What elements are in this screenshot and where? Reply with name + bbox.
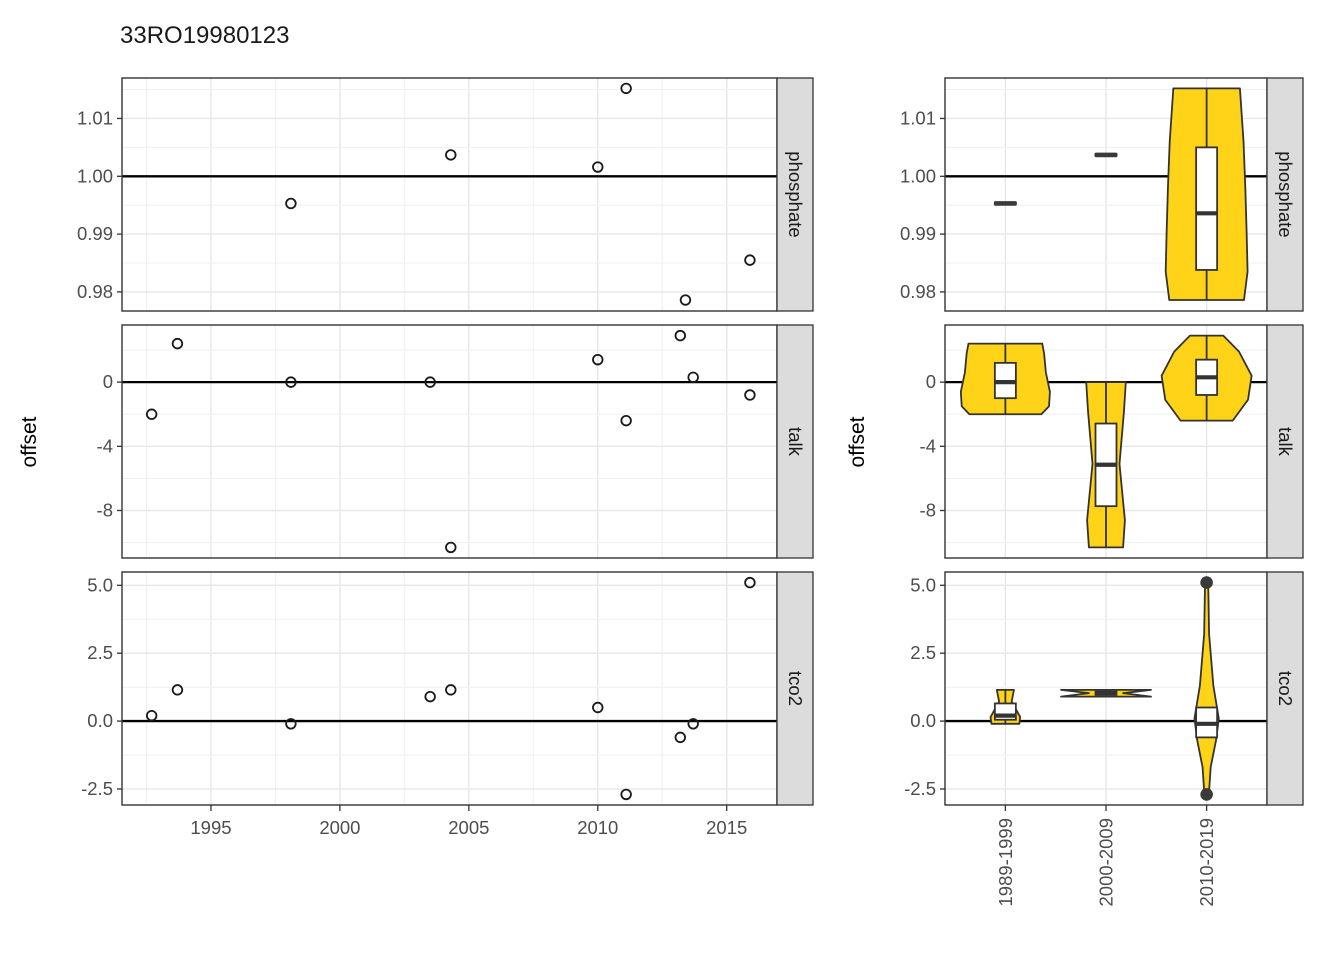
y-tick-label: 1.00 xyxy=(77,165,113,186)
y-tick-label: 5.0 xyxy=(87,574,113,595)
y-tick-label: -8 xyxy=(920,500,936,521)
scatter-panel-phosphate: 1.011.000.990.98phosphate xyxy=(77,78,813,311)
facet-strip-label: tco2 xyxy=(785,671,806,706)
single-value-dash xyxy=(1095,153,1118,158)
x-tick-label: 2010 xyxy=(577,817,618,838)
y-tick-label: -4 xyxy=(97,435,113,456)
y-tick-label: 0.99 xyxy=(900,223,936,244)
scatter-panel-tco2: 5.02.50.0-2.5tco2 xyxy=(81,572,813,805)
x-tick-label: 2015 xyxy=(706,817,747,838)
y-tick-label: 0.98 xyxy=(77,281,113,302)
y-tick-label: 1.01 xyxy=(900,107,936,128)
y-tick-label: 2.5 xyxy=(87,642,113,663)
y-tick-label: -2.5 xyxy=(904,778,936,799)
y-tick-label: 0.0 xyxy=(87,710,113,731)
facet-strip-label: talk xyxy=(785,427,806,457)
left-x-axis: 19952000200520102015 xyxy=(190,805,747,838)
crossover-offset-figure: 33RO19980123 offset offset 1.011.000.990… xyxy=(0,0,1344,960)
right-x-axis: 1989-19992000-20092010-2019 xyxy=(995,805,1217,906)
x-tick-label: 2000 xyxy=(319,817,360,838)
outlier-point xyxy=(1200,788,1213,801)
facet-strip-label: tco2 xyxy=(1275,671,1296,706)
outlier-point xyxy=(1200,576,1213,589)
y-tick-label: 1.00 xyxy=(900,165,936,186)
x-tick-label: 1995 xyxy=(190,817,231,838)
y-tick-label: 1.01 xyxy=(77,107,113,128)
box xyxy=(1196,147,1217,270)
x-tick-label-rotated: 2000-2009 xyxy=(1096,818,1117,906)
faceted-offset-charts: 1.011.000.990.98phosphate0-4-8talk5.02.5… xyxy=(0,0,1344,960)
y-tick-label: 0 xyxy=(926,371,936,392)
violin-panel-tco2: 5.02.50.0-2.5tco2 xyxy=(904,572,1303,805)
y-tick-label: 5.0 xyxy=(910,574,936,595)
scatter-panel-talk: 0-4-8talk xyxy=(97,325,813,558)
violin-panel-phosphate: 1.011.000.990.98phosphate xyxy=(900,78,1303,311)
y-tick-label: 0.98 xyxy=(900,281,936,302)
facet-strip-label: phosphate xyxy=(785,151,806,237)
y-tick-label: 0 xyxy=(103,371,113,392)
single-value-dash xyxy=(994,201,1017,206)
y-tick-label: 0.0 xyxy=(910,710,936,731)
violin-panel-talk: 0-4-8talk xyxy=(920,325,1303,558)
y-tick-label: -4 xyxy=(920,435,936,456)
x-tick-label-rotated: 2010-2019 xyxy=(1196,818,1217,906)
x-tick-label: 2005 xyxy=(448,817,489,838)
facet-strip-label: talk xyxy=(1275,427,1296,457)
facet-strip-label: phosphate xyxy=(1275,151,1296,237)
y-tick-label: 2.5 xyxy=(910,642,936,663)
y-tick-label: 0.99 xyxy=(77,223,113,244)
y-tick-label: -2.5 xyxy=(81,778,113,799)
y-tick-label: -8 xyxy=(97,500,113,521)
x-tick-label-rotated: 1989-1999 xyxy=(995,818,1016,906)
